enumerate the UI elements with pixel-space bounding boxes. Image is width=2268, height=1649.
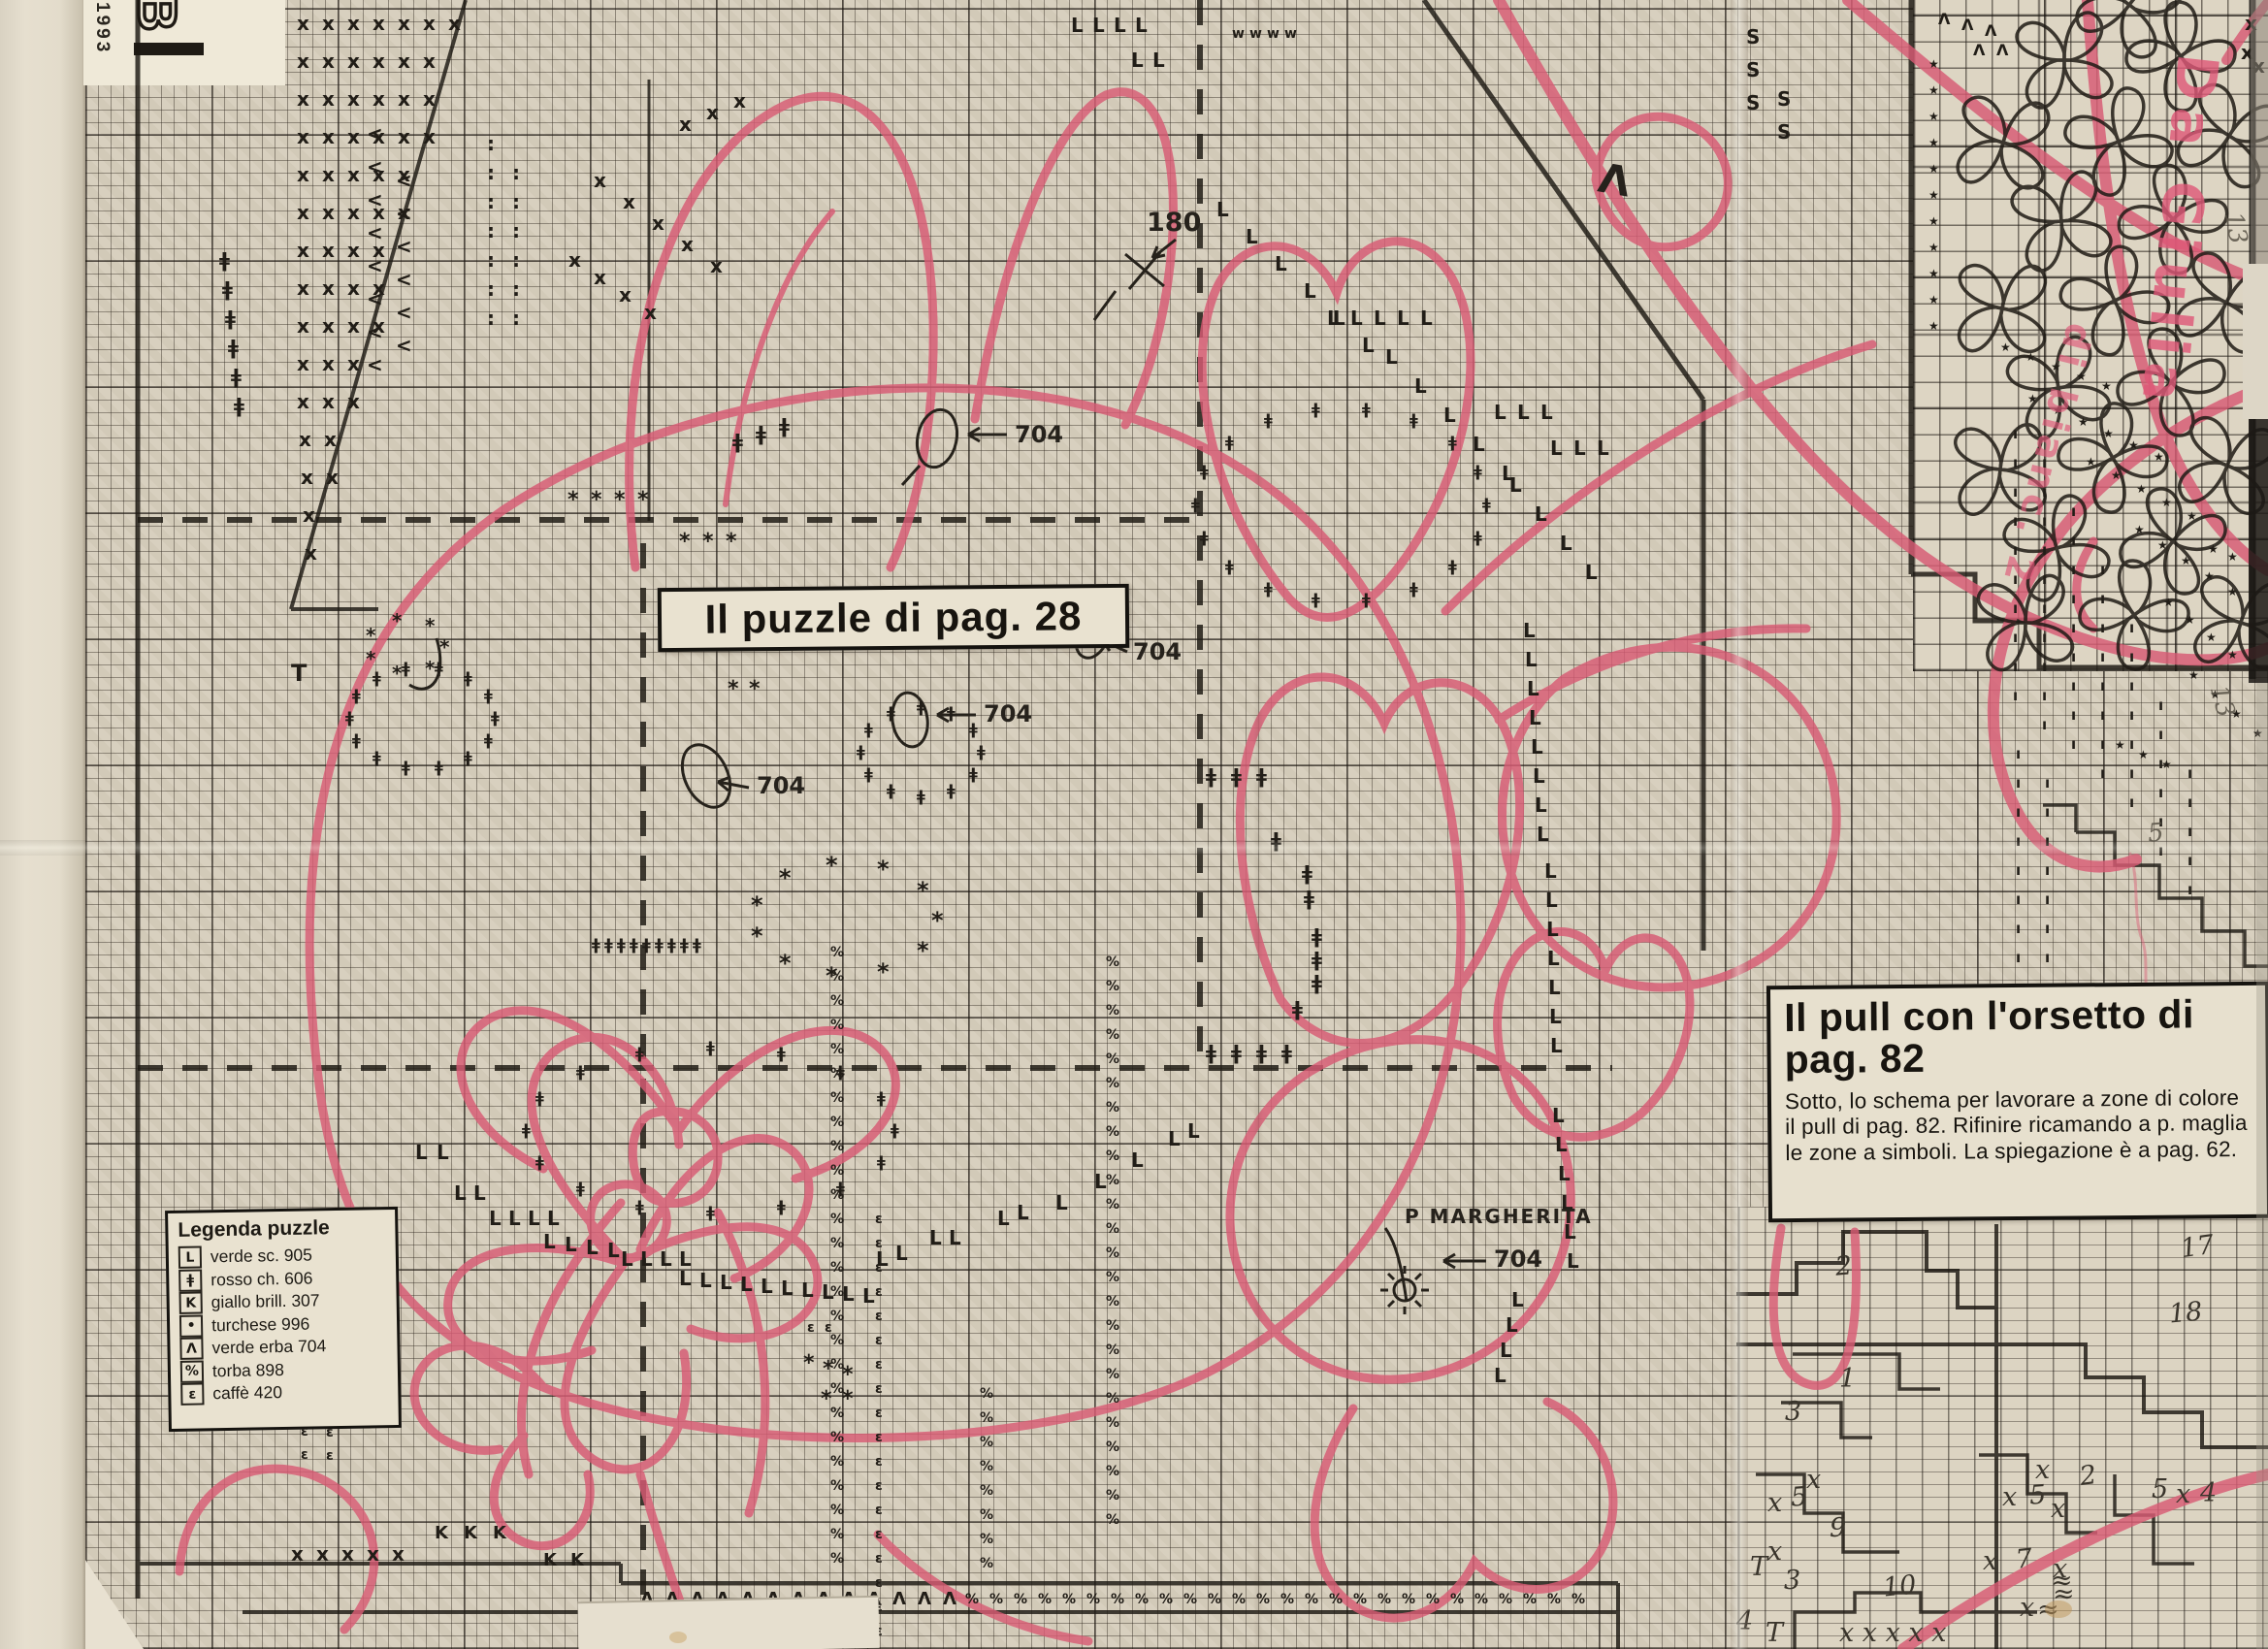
masthead-year: 1993 bbox=[91, 2, 113, 54]
dashed-guide-horizontal-bottom bbox=[138, 1065, 1612, 1071]
legend-label: torba 898 bbox=[212, 1360, 284, 1381]
bottom-caption-strip bbox=[577, 1596, 879, 1649]
legend-symbol: ε bbox=[180, 1383, 204, 1406]
scan-edge-dark bbox=[2249, 419, 2268, 683]
scan-edge-bottom-right bbox=[2256, 683, 2268, 1649]
puzzle-label-text: Il puzzle di pag. 28 bbox=[704, 593, 1082, 642]
legend-label: turchese 996 bbox=[211, 1313, 310, 1336]
zone-knit-chart-grid bbox=[1738, 1207, 2268, 1649]
page-left-margin bbox=[0, 0, 85, 1649]
scan-edge-top-right bbox=[2251, 0, 2268, 264]
masthead-corner: 1993 B bbox=[83, 0, 285, 85]
annotation-704-a: 704 bbox=[1015, 423, 1063, 446]
legend-label: verde erba 704 bbox=[211, 1336, 326, 1358]
legend-entry: εcaffè 420 bbox=[180, 1379, 390, 1406]
annotation-704-b: 704 bbox=[984, 702, 1032, 726]
legend-title: Legenda puzzle bbox=[178, 1215, 387, 1243]
dashed-guide-horizontal-top bbox=[138, 517, 1201, 523]
legend-symbol: ǂ bbox=[178, 1269, 202, 1291]
annotation-704-e: 704 bbox=[1494, 1247, 1542, 1271]
legend-label: rosso ch. 606 bbox=[211, 1268, 312, 1290]
legend-rows: Lverde sc. 905ǂrosso ch. 606Kgiallo bril… bbox=[178, 1243, 391, 1406]
pull-label-box: Il pull con l'orsetto di pag. 82 Sotto, … bbox=[1766, 982, 2268, 1223]
legend-box: Legenda puzzle Lverde sc. 905ǂrosso ch. … bbox=[165, 1207, 402, 1432]
annotation-margherita: P MARGHERITA bbox=[1405, 1207, 1593, 1226]
legend-symbol: K bbox=[178, 1292, 202, 1314]
annotation-lambda: Λ bbox=[1596, 157, 1634, 203]
dashed-guide-vertical-right bbox=[1197, 0, 1203, 1071]
legend-label: giallo brill. 307 bbox=[211, 1291, 320, 1313]
annotation-180: 180 bbox=[1147, 210, 1201, 236]
masthead-bar bbox=[134, 43, 204, 55]
dashed-guide-vertical-left bbox=[640, 543, 646, 1599]
legend-label: verde sc. 905 bbox=[211, 1245, 312, 1268]
scan-edge-page-sliver bbox=[2243, 264, 2268, 419]
puzzle-label-box: Il puzzle di pag. 28 bbox=[658, 584, 1130, 652]
annotation-704-d: 704 bbox=[1133, 640, 1182, 663]
legend-symbol: L bbox=[178, 1246, 202, 1269]
legend-symbol: % bbox=[180, 1360, 204, 1382]
masthead-letter-logo: B bbox=[126, 0, 189, 31]
legend-symbol: Λ bbox=[179, 1338, 203, 1360]
pull-body-text: Sotto, lo schema per lavorare a zone di … bbox=[1785, 1085, 2255, 1166]
annotation-704-c: 704 bbox=[757, 774, 805, 797]
pull-title: Il pull con l'orsetto di pag. 82 bbox=[1784, 993, 2254, 1082]
legend-label: caffè 420 bbox=[212, 1382, 282, 1404]
magazine-scan-page: 1993 B bbox=[0, 0, 2268, 1649]
legend-symbol: • bbox=[179, 1314, 203, 1337]
